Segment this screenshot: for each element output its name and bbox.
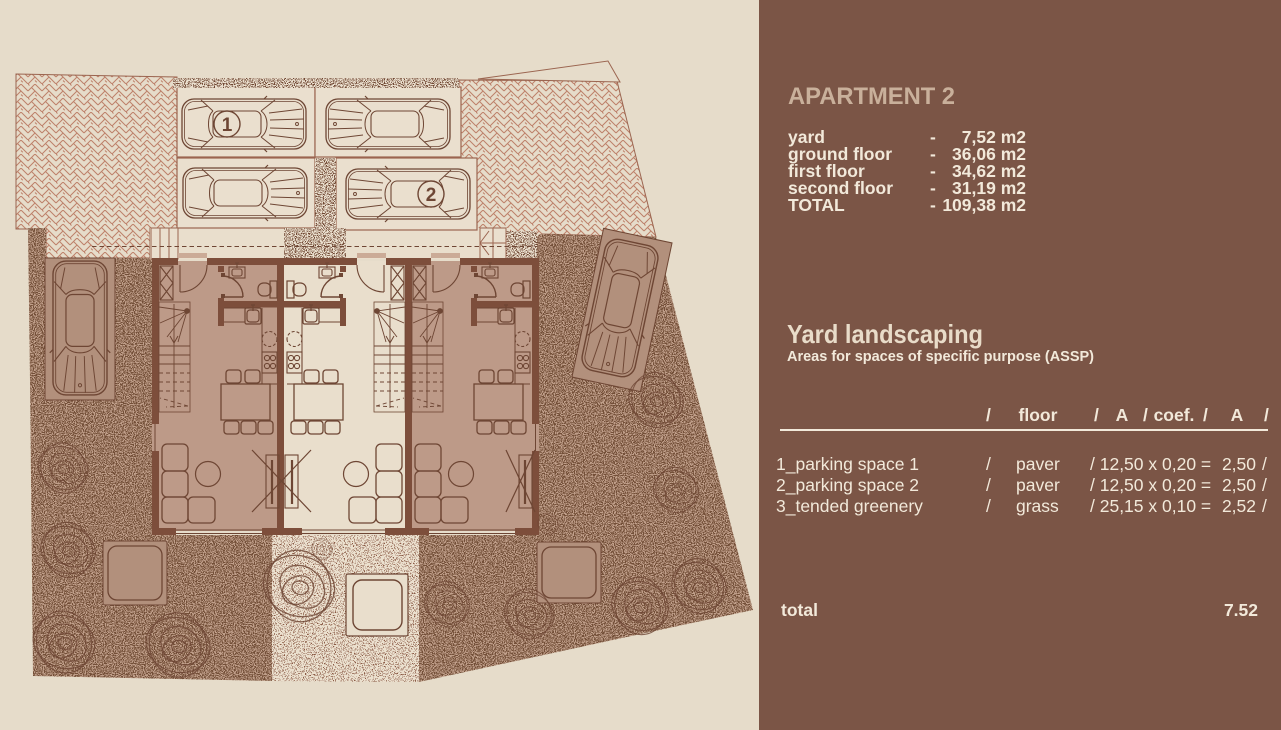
svg-text:/: / [1262,496,1267,516]
svg-text:total: total [781,600,818,620]
svg-text:-: - [930,195,936,215]
svg-text:/ 25,15 x 0,10 =: / 25,15 x 0,10 = [1090,496,1211,516]
svg-text:/: / [1262,454,1267,474]
svg-text:coef.: coef. [1154,405,1195,425]
svg-text:Yard landscaping: Yard landscaping [787,319,983,349]
svg-text:2_parking space 2: 2_parking space 2 [776,475,919,496]
svg-text:/ 12,50 x 0,20 =: / 12,50 x 0,20 = [1090,454,1211,474]
svg-text:/: / [1203,405,1208,425]
svg-text:TOTAL: TOTAL [788,195,845,215]
svg-text:7.52: 7.52 [1224,600,1258,620]
svg-text:/: / [986,454,991,474]
svg-text:grass: grass [1016,496,1059,516]
svg-text:2,52: 2,52 [1222,496,1256,516]
svg-text:paver: paver [1016,454,1060,474]
svg-text:/: / [1262,475,1267,495]
svg-text:2: 2 [426,185,437,206]
svg-text:1_parking space 1: 1_parking space 1 [776,454,919,475]
svg-text:A: A [1116,405,1129,425]
svg-text:2,50: 2,50 [1222,475,1256,495]
svg-text:/: / [1264,405,1269,425]
svg-text:3_tended greenery: 3_tended greenery [776,496,923,517]
svg-text:paver: paver [1016,475,1060,495]
svg-text:/: / [986,496,991,516]
svg-text:/: / [1094,405,1099,425]
svg-text:A: A [1231,405,1244,425]
svg-text:APARTMENT 2: APARTMENT 2 [788,83,955,110]
svg-text:/ 12,50 x 0,20 =: / 12,50 x 0,20 = [1090,475,1211,495]
svg-text:floor: floor [1019,405,1058,425]
svg-text:2,50: 2,50 [1222,454,1256,474]
svg-text:109,38 m2: 109,38 m2 [942,195,1026,215]
svg-text:/: / [986,475,991,495]
svg-text:Areas for spaces of specific p: Areas for spaces of specific purpose (AS… [787,349,1094,365]
svg-text:/: / [1143,405,1148,425]
svg-text:1: 1 [222,115,233,136]
svg-text:/: / [986,405,991,425]
